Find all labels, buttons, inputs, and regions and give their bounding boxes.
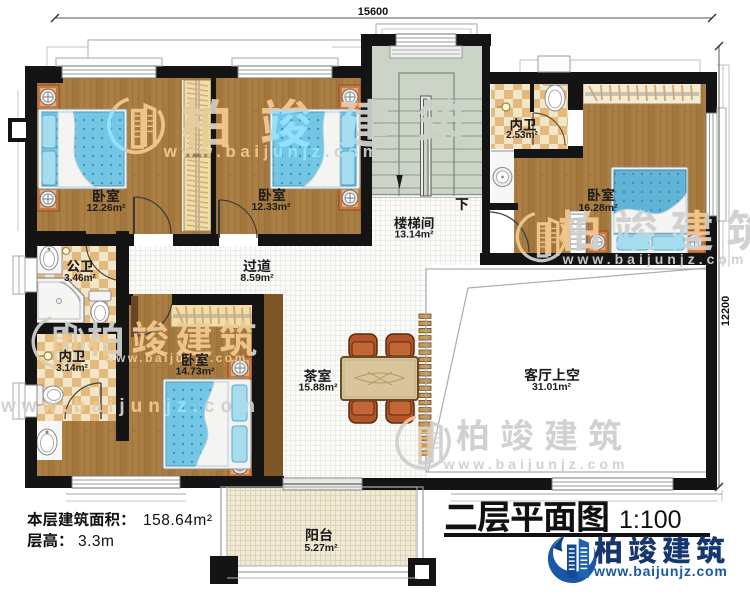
svg-text:15.88m²: 15.88m² <box>298 382 338 394</box>
svg-text:www.baijunjz.com: www.baijunjz.com <box>0 396 261 417</box>
svg-text:8.59m²: 8.59m² <box>240 272 274 284</box>
svg-text:12200: 12200 <box>720 296 732 327</box>
svg-text:12.26m²: 12.26m² <box>86 202 126 214</box>
svg-text:www.baijunjz.com: www.baijunjz.com <box>443 456 629 472</box>
svg-text:3.14m²: 3.14m² <box>56 363 88 374</box>
svg-text:2.53m²: 2.53m² <box>506 130 538 141</box>
svg-text:www.baijunjz.com: www.baijunjz.com <box>593 563 728 579</box>
svg-text:14.73m²: 14.73m² <box>175 366 215 378</box>
svg-text:31.01m²: 31.01m² <box>532 381 572 393</box>
svg-text:158.64m²: 158.64m² <box>143 512 212 529</box>
svg-text:www.baijunjz.com: www.baijunjz.com <box>103 351 248 365</box>
svg-text:12.33m²: 12.33m² <box>251 201 291 213</box>
svg-text:3.3m: 3.3m <box>78 533 114 550</box>
svg-text:15600: 15600 <box>358 6 389 18</box>
svg-text:13.14m²: 13.14m² <box>394 229 434 241</box>
svg-text:www.baijunjz.com: www.baijunjz.com <box>562 251 748 267</box>
svg-text:16.28m²: 16.28m² <box>578 202 618 214</box>
svg-text:www.baijunjz.com: www.baijunjz.com <box>163 142 383 161</box>
svg-text:5.27m²: 5.27m² <box>304 542 338 554</box>
svg-text:3.46m²: 3.46m² <box>64 273 96 284</box>
svg-text:1:100: 1:100 <box>619 506 682 534</box>
